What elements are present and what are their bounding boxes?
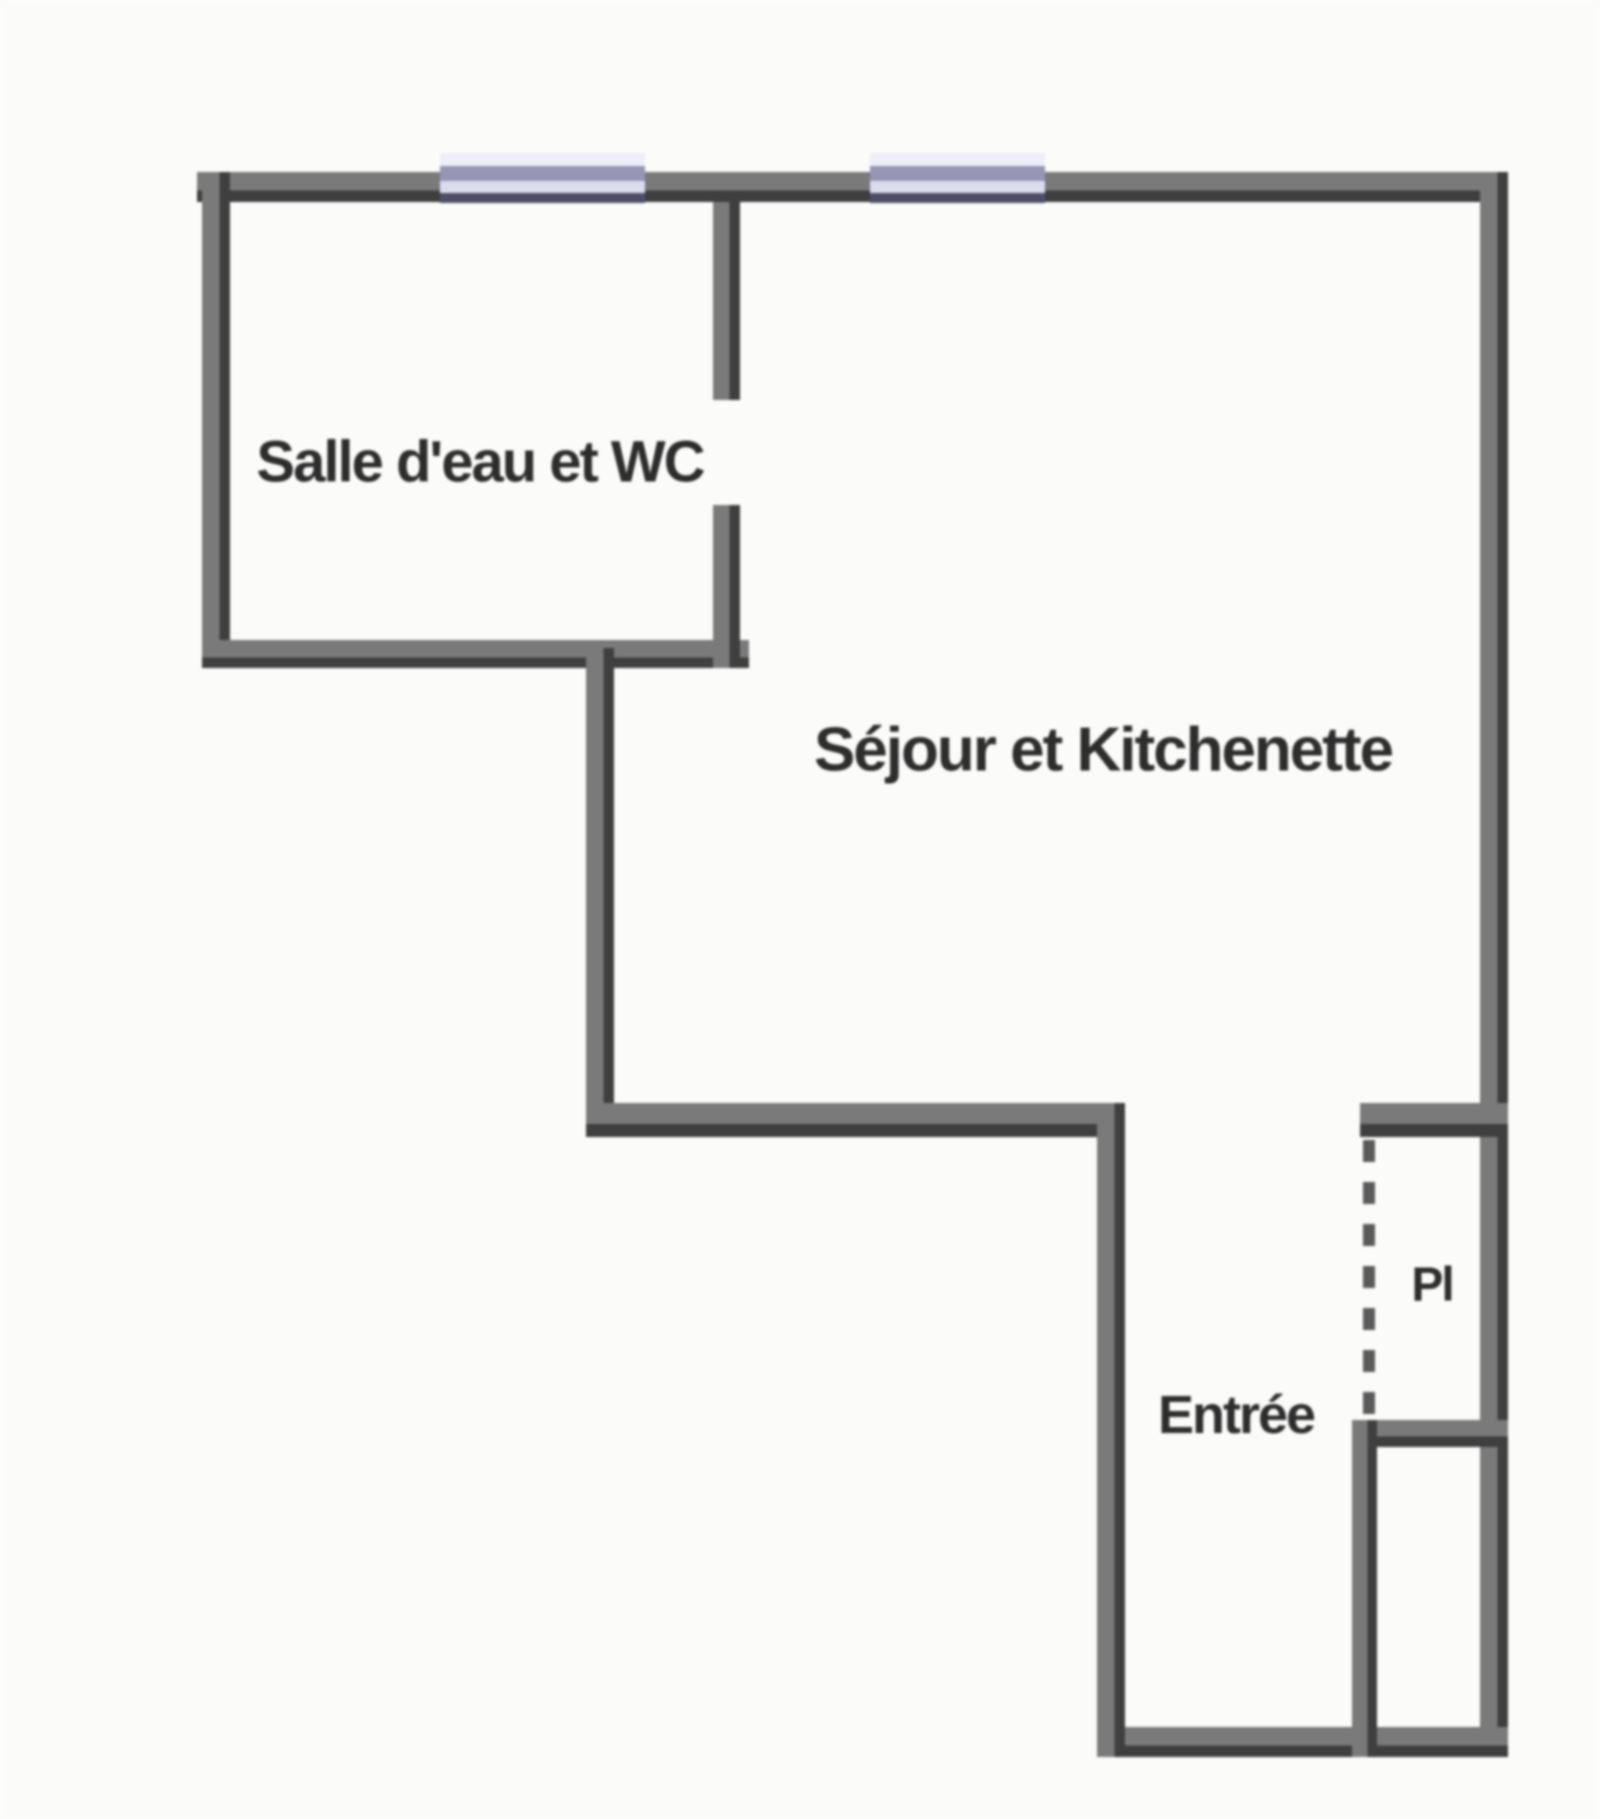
exterior-left-wall <box>202 172 230 668</box>
closet-top-wall <box>1360 1103 1508 1137</box>
floor-plan: Salle d'eau et WC Séjour et Kitchenette … <box>0 0 1600 1819</box>
exterior-bottom-wall <box>1097 1727 1508 1757</box>
room-label-closet: Pl <box>1411 1258 1452 1313</box>
window-top-left-icon <box>440 153 645 203</box>
exterior-right-wall <box>1480 172 1508 1757</box>
exterior-top-wall <box>197 172 1508 202</box>
duct-left-wall <box>1352 1420 1377 1757</box>
window-top-right-icon <box>870 153 1045 203</box>
room-label-hall: Entrée <box>1158 1384 1314 1446</box>
hall-left-wall <box>1097 1103 1125 1757</box>
closet-door-dashed-line <box>1363 1140 1375 1424</box>
living-left-wall <box>586 648 614 1120</box>
room-label-bathroom: Salle d'eau et WC <box>256 429 703 496</box>
living-area <box>614 202 1480 1103</box>
living-bottom-wall <box>586 1103 1125 1137</box>
room-label-living: Séjour et Kitchenette <box>814 715 1392 786</box>
